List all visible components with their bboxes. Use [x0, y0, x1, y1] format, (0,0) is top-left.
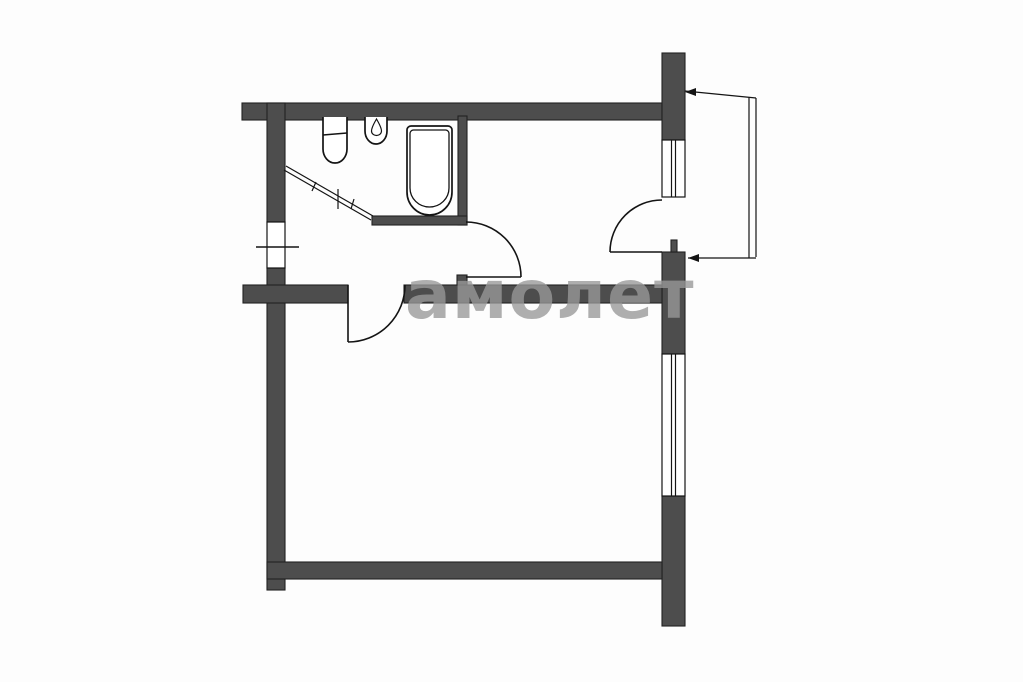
- toilet-icon: [323, 117, 347, 163]
- walls: [242, 53, 685, 626]
- floorplan-image: амолет: [0, 0, 1023, 682]
- balcony: [685, 88, 756, 262]
- wall-bottom: [267, 562, 662, 579]
- bathtub-icon: [407, 126, 452, 215]
- wall-left-lower: [267, 268, 285, 590]
- wall-top: [242, 103, 662, 120]
- sink-icon: [365, 117, 387, 144]
- balcony-anchor-arrow-top-icon: [685, 88, 696, 96]
- living-room-door: [348, 285, 405, 342]
- wall-balcony-door-jamb: [671, 240, 677, 252]
- partition-line: [284, 170, 371, 220]
- wall-left-upper: [267, 103, 285, 222]
- floorplan-svg: амолет: [0, 0, 1023, 682]
- wall-bathroom-right: [458, 116, 467, 225]
- bathtub-inner: [410, 130, 449, 207]
- upper-window: [662, 140, 685, 197]
- watermark-text: амолет: [405, 256, 695, 335]
- living-room-door-swing-arc: [348, 285, 405, 342]
- balcony-door-swing-arc: [610, 200, 662, 252]
- wall-middle-left: [243, 285, 348, 303]
- bathroom-fixtures: [284, 117, 452, 220]
- wall-right-column-top: [662, 53, 685, 140]
- bathroom-diagonal-partition: [284, 166, 373, 220]
- balcony-door: [610, 200, 662, 252]
- wall-bathroom-bottom: [372, 216, 467, 225]
- upper-window-frame: [662, 140, 685, 197]
- toilet-outline: [323, 117, 347, 163]
- partition-line: [286, 166, 373, 216]
- entry-opening-frame: [267, 222, 285, 268]
- lower-window-frame: [662, 354, 685, 496]
- entry-opening: [256, 222, 299, 268]
- wall-right-bottom: [662, 496, 685, 626]
- lower-window: [662, 354, 685, 496]
